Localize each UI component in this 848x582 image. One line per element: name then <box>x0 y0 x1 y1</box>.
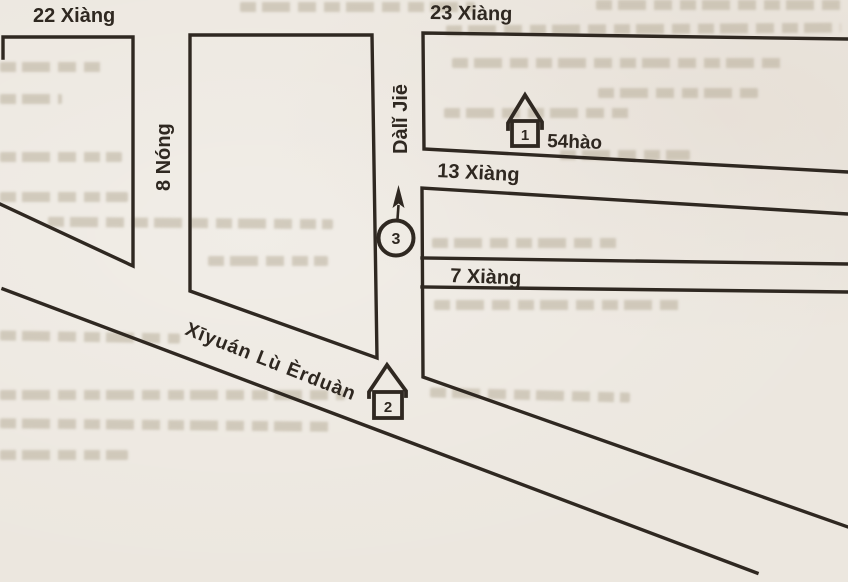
block-north-middle-outline <box>190 35 377 358</box>
direction-arrow-icon <box>393 185 405 208</box>
house-1-address-label: 54hào <box>547 131 603 154</box>
street-xiyuan-south-line <box>3 289 757 573</box>
street-label-xiyuan-lu-erduan: Xīyuán Lù Èrduàn <box>182 317 360 405</box>
house-2-number: 2 <box>384 399 392 416</box>
street-7xiang-north-line <box>422 258 848 264</box>
block-east-outline <box>422 188 848 527</box>
street-map: 1 2 3 22 Xiàng 23 Xiàng 8 Nóng Dàlǐ Jiē … <box>0 0 848 582</box>
scanned-map-page: 1 2 3 22 Xiàng 23 Xiàng 8 Nóng Dàlǐ Jiē … <box>0 0 848 582</box>
street-label-8nong: 8 Nóng <box>153 123 175 191</box>
street-label-13xiang: 13 Xiàng <box>437 160 520 186</box>
street-label-23xiang: 23 Xiàng <box>430 2 513 25</box>
street-label-22xiang: 22 Xiàng <box>33 5 115 27</box>
direction-arrow-shaft <box>398 205 399 219</box>
point-3-number: 3 <box>392 231 401 248</box>
street-label-7xiang: 7 Xiàng <box>450 265 522 289</box>
house-1-number: 1 <box>521 127 529 144</box>
block-northwest-outline <box>0 37 133 266</box>
street-label-dali-jie: Dàlǐ Jiē <box>390 84 412 154</box>
block-northeast-outline <box>423 33 848 172</box>
